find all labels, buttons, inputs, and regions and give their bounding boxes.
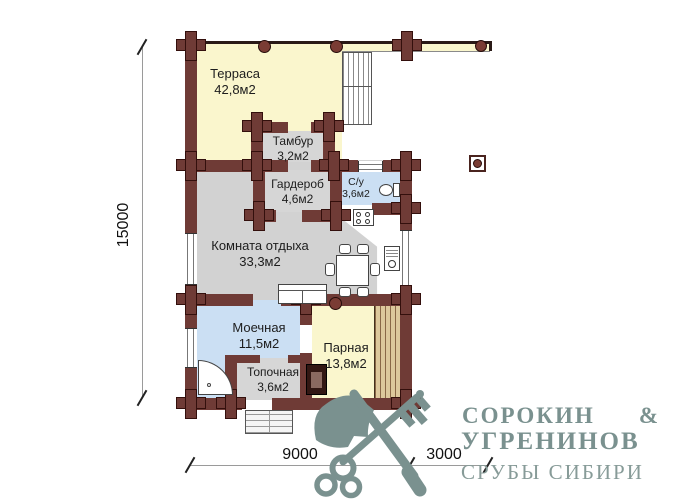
log-joint — [401, 31, 413, 61]
steps-divider — [269, 411, 270, 433]
entrance-steps — [245, 410, 293, 434]
room-label-tambour: Тамбур 3,2м2 — [251, 134, 335, 163]
dining-table — [336, 255, 369, 286]
log-end — [329, 297, 342, 310]
chair — [339, 287, 351, 297]
logo-name-line1: СОРОКИН & — [462, 403, 660, 429]
window — [185, 328, 197, 368]
kitchen-stove-icon — [353, 209, 374, 226]
room-label-lounge: Комната отдыха 33,3м2 — [185, 238, 335, 270]
log-joint — [400, 151, 412, 181]
logo-name-line2: УГРЕНИНОВ — [461, 428, 665, 456]
room-label-wardrobe: Гардероб 4,6м2 — [253, 177, 342, 206]
room-name: Парная — [294, 340, 398, 356]
room-name: Терраса — [185, 66, 285, 82]
log-joint — [185, 151, 197, 181]
dimension-line-vertical — [142, 47, 143, 398]
sofa-cushion-divider — [302, 290, 303, 303]
floor-plan: Терраса 42,8м2 Тамбур 3,2м2 Гардероб 4,6… — [0, 0, 684, 502]
window — [400, 230, 412, 287]
terrace-post — [330, 40, 343, 53]
chair — [357, 287, 369, 297]
log-joint — [400, 285, 412, 315]
room-area: 3,2м2 — [251, 149, 335, 164]
log-joint — [185, 389, 197, 419]
terrace-post — [475, 40, 487, 52]
dimension-label-height: 15000 — [115, 185, 133, 265]
stairs-landing-line — [343, 86, 371, 87]
room-label-terrace: Терраса 42,8м2 — [185, 66, 285, 98]
shower-drain — [207, 383, 211, 387]
room-name: Комната отдыха — [185, 238, 335, 254]
stairs — [342, 52, 372, 125]
toilet-icon — [379, 184, 393, 196]
column-core — [473, 159, 482, 168]
logo-tagline: СРУБЫ СИБИРИ — [461, 460, 667, 485]
sofa — [278, 284, 327, 304]
room-area: 4,6м2 — [253, 192, 342, 207]
room-name: Тамбур — [251, 134, 335, 149]
toilet-tank — [393, 183, 400, 197]
chair — [357, 244, 369, 254]
room-label-bathroom: С/у 3,6м2 — [338, 176, 374, 200]
room-name: Гардероб — [253, 177, 342, 192]
free-standing-column — [469, 155, 486, 172]
terrace-beam-cap — [489, 41, 492, 51]
sink-bowl — [388, 260, 396, 268]
room-name: Топочная — [221, 365, 325, 380]
room-area: 33,3м2 — [185, 254, 335, 270]
logo-ampersand: & — [639, 403, 660, 429]
chair — [339, 244, 351, 254]
log-joint — [400, 194, 412, 224]
sink-icon — [384, 246, 400, 271]
room-area: 3,6м2 — [338, 188, 374, 200]
room-name: Моечная — [197, 320, 321, 336]
room-name: С/у — [338, 176, 374, 188]
window — [358, 161, 383, 172]
room-area: 42,8м2 — [185, 82, 285, 98]
axe-key-logo-icon — [310, 380, 468, 502]
chair — [370, 263, 380, 276]
log-joint — [185, 285, 197, 315]
log-joint — [185, 31, 197, 61]
logo-partner1: СОРОКИН — [462, 403, 595, 429]
sink-drainer — [386, 248, 398, 257]
terrace-post — [258, 40, 271, 53]
